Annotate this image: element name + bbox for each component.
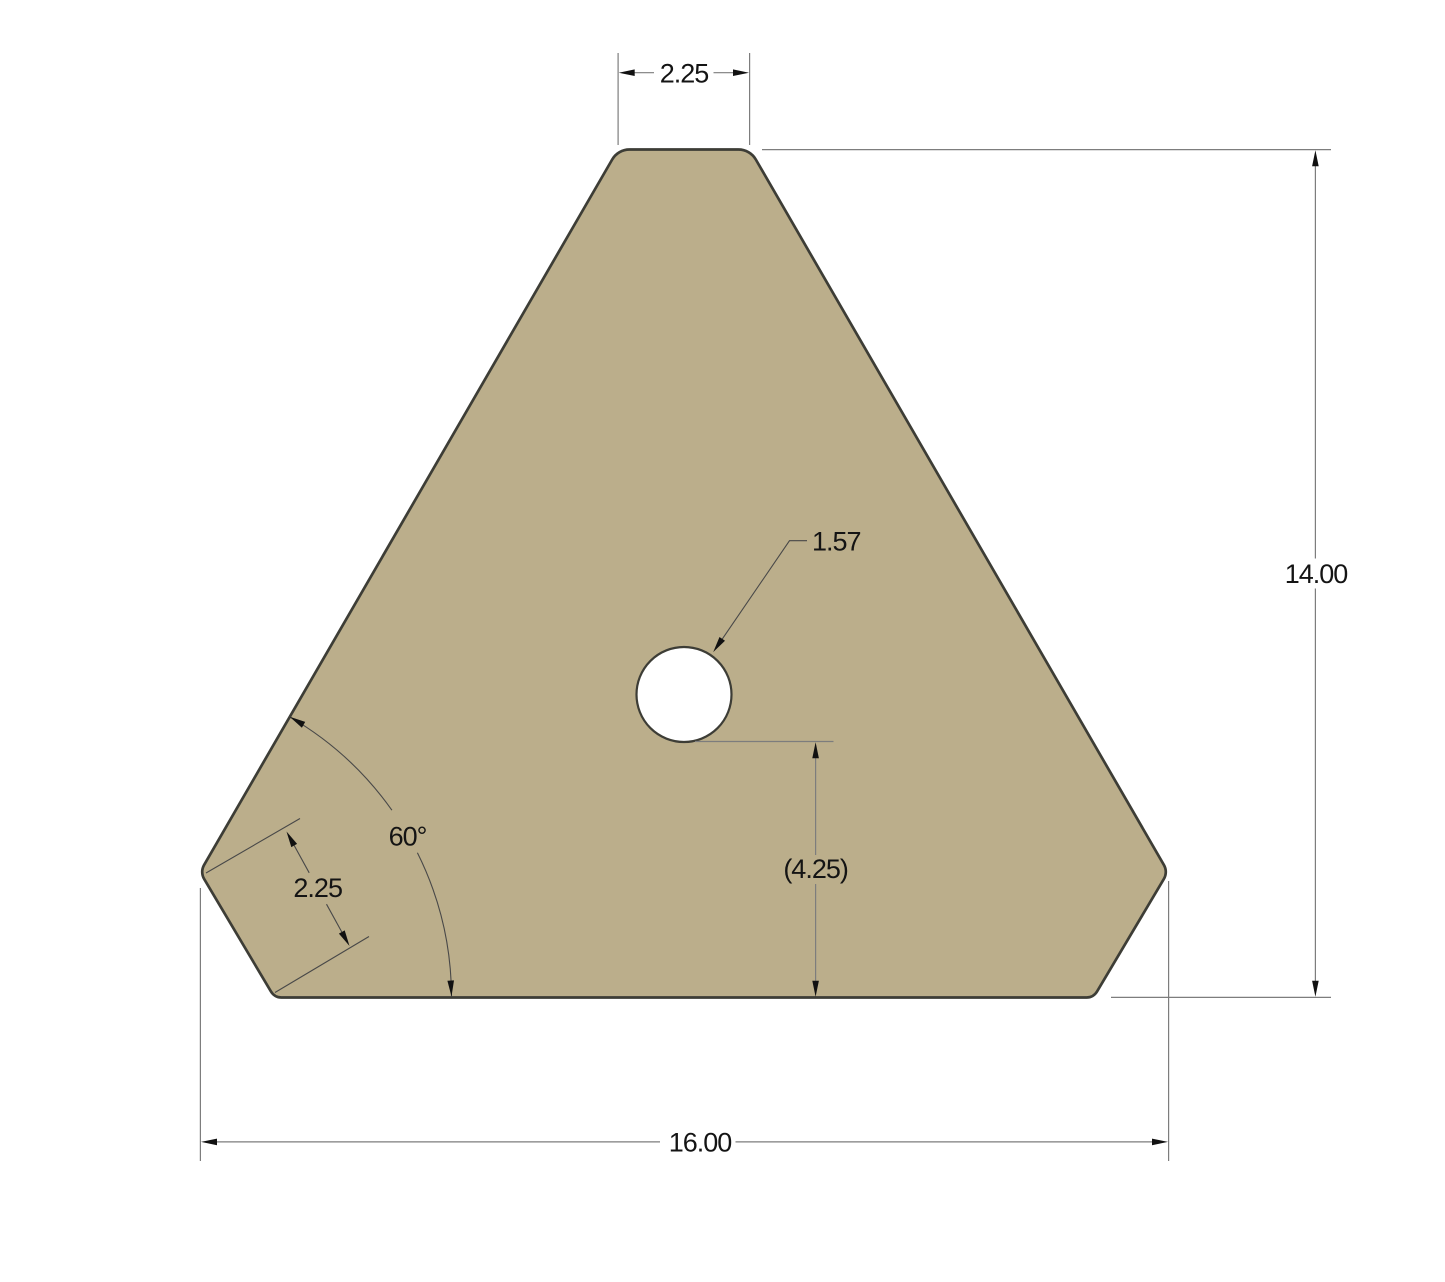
svg-text:14.00: 14.00 bbox=[1285, 559, 1348, 589]
svg-text:1.57: 1.57 bbox=[812, 526, 861, 556]
svg-text:(4.25): (4.25) bbox=[783, 854, 848, 884]
svg-text:2.25: 2.25 bbox=[293, 873, 342, 903]
svg-text:60°: 60° bbox=[389, 821, 427, 851]
svg-text:16.00: 16.00 bbox=[669, 1128, 732, 1158]
svg-text:2.25: 2.25 bbox=[660, 58, 709, 88]
